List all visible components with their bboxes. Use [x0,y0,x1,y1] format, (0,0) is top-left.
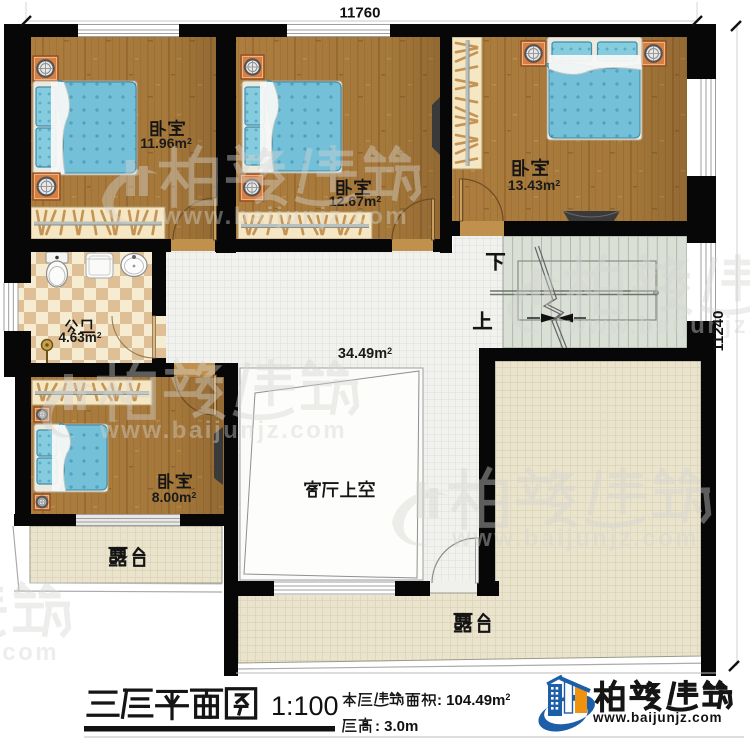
svg-text:www.baijunjz.com: www.baijunjz.com [592,710,722,725]
svg-text:www.baijunjz.com: www.baijunjz.com [0,639,59,666]
svg-text:11760: 11760 [340,5,381,22]
svg-text:34.49m2: 34.49m2 [338,346,392,362]
svg-text:11240: 11240 [710,311,727,352]
svg-text:www.baijunjz.com: www.baijunjz.com [451,525,699,552]
svg-text:13.43m2: 13.43m2 [508,177,560,193]
svg-text:www.baijunjz.com: www.baijunjz.com [161,203,409,230]
svg-text:1:100: 1:100 [271,691,339,721]
svg-text:: 104.49m2: : 104.49m2 [437,692,510,709]
svg-text:8.00m2: 8.00m2 [152,489,197,505]
svg-text:11.96m2: 11.96m2 [140,135,192,151]
svg-text:: 3.0m: : 3.0m [375,718,418,735]
svg-text:www.baijunjz.com: www.baijunjz.com [99,417,347,444]
svg-text:4.63m2: 4.63m2 [59,330,102,345]
